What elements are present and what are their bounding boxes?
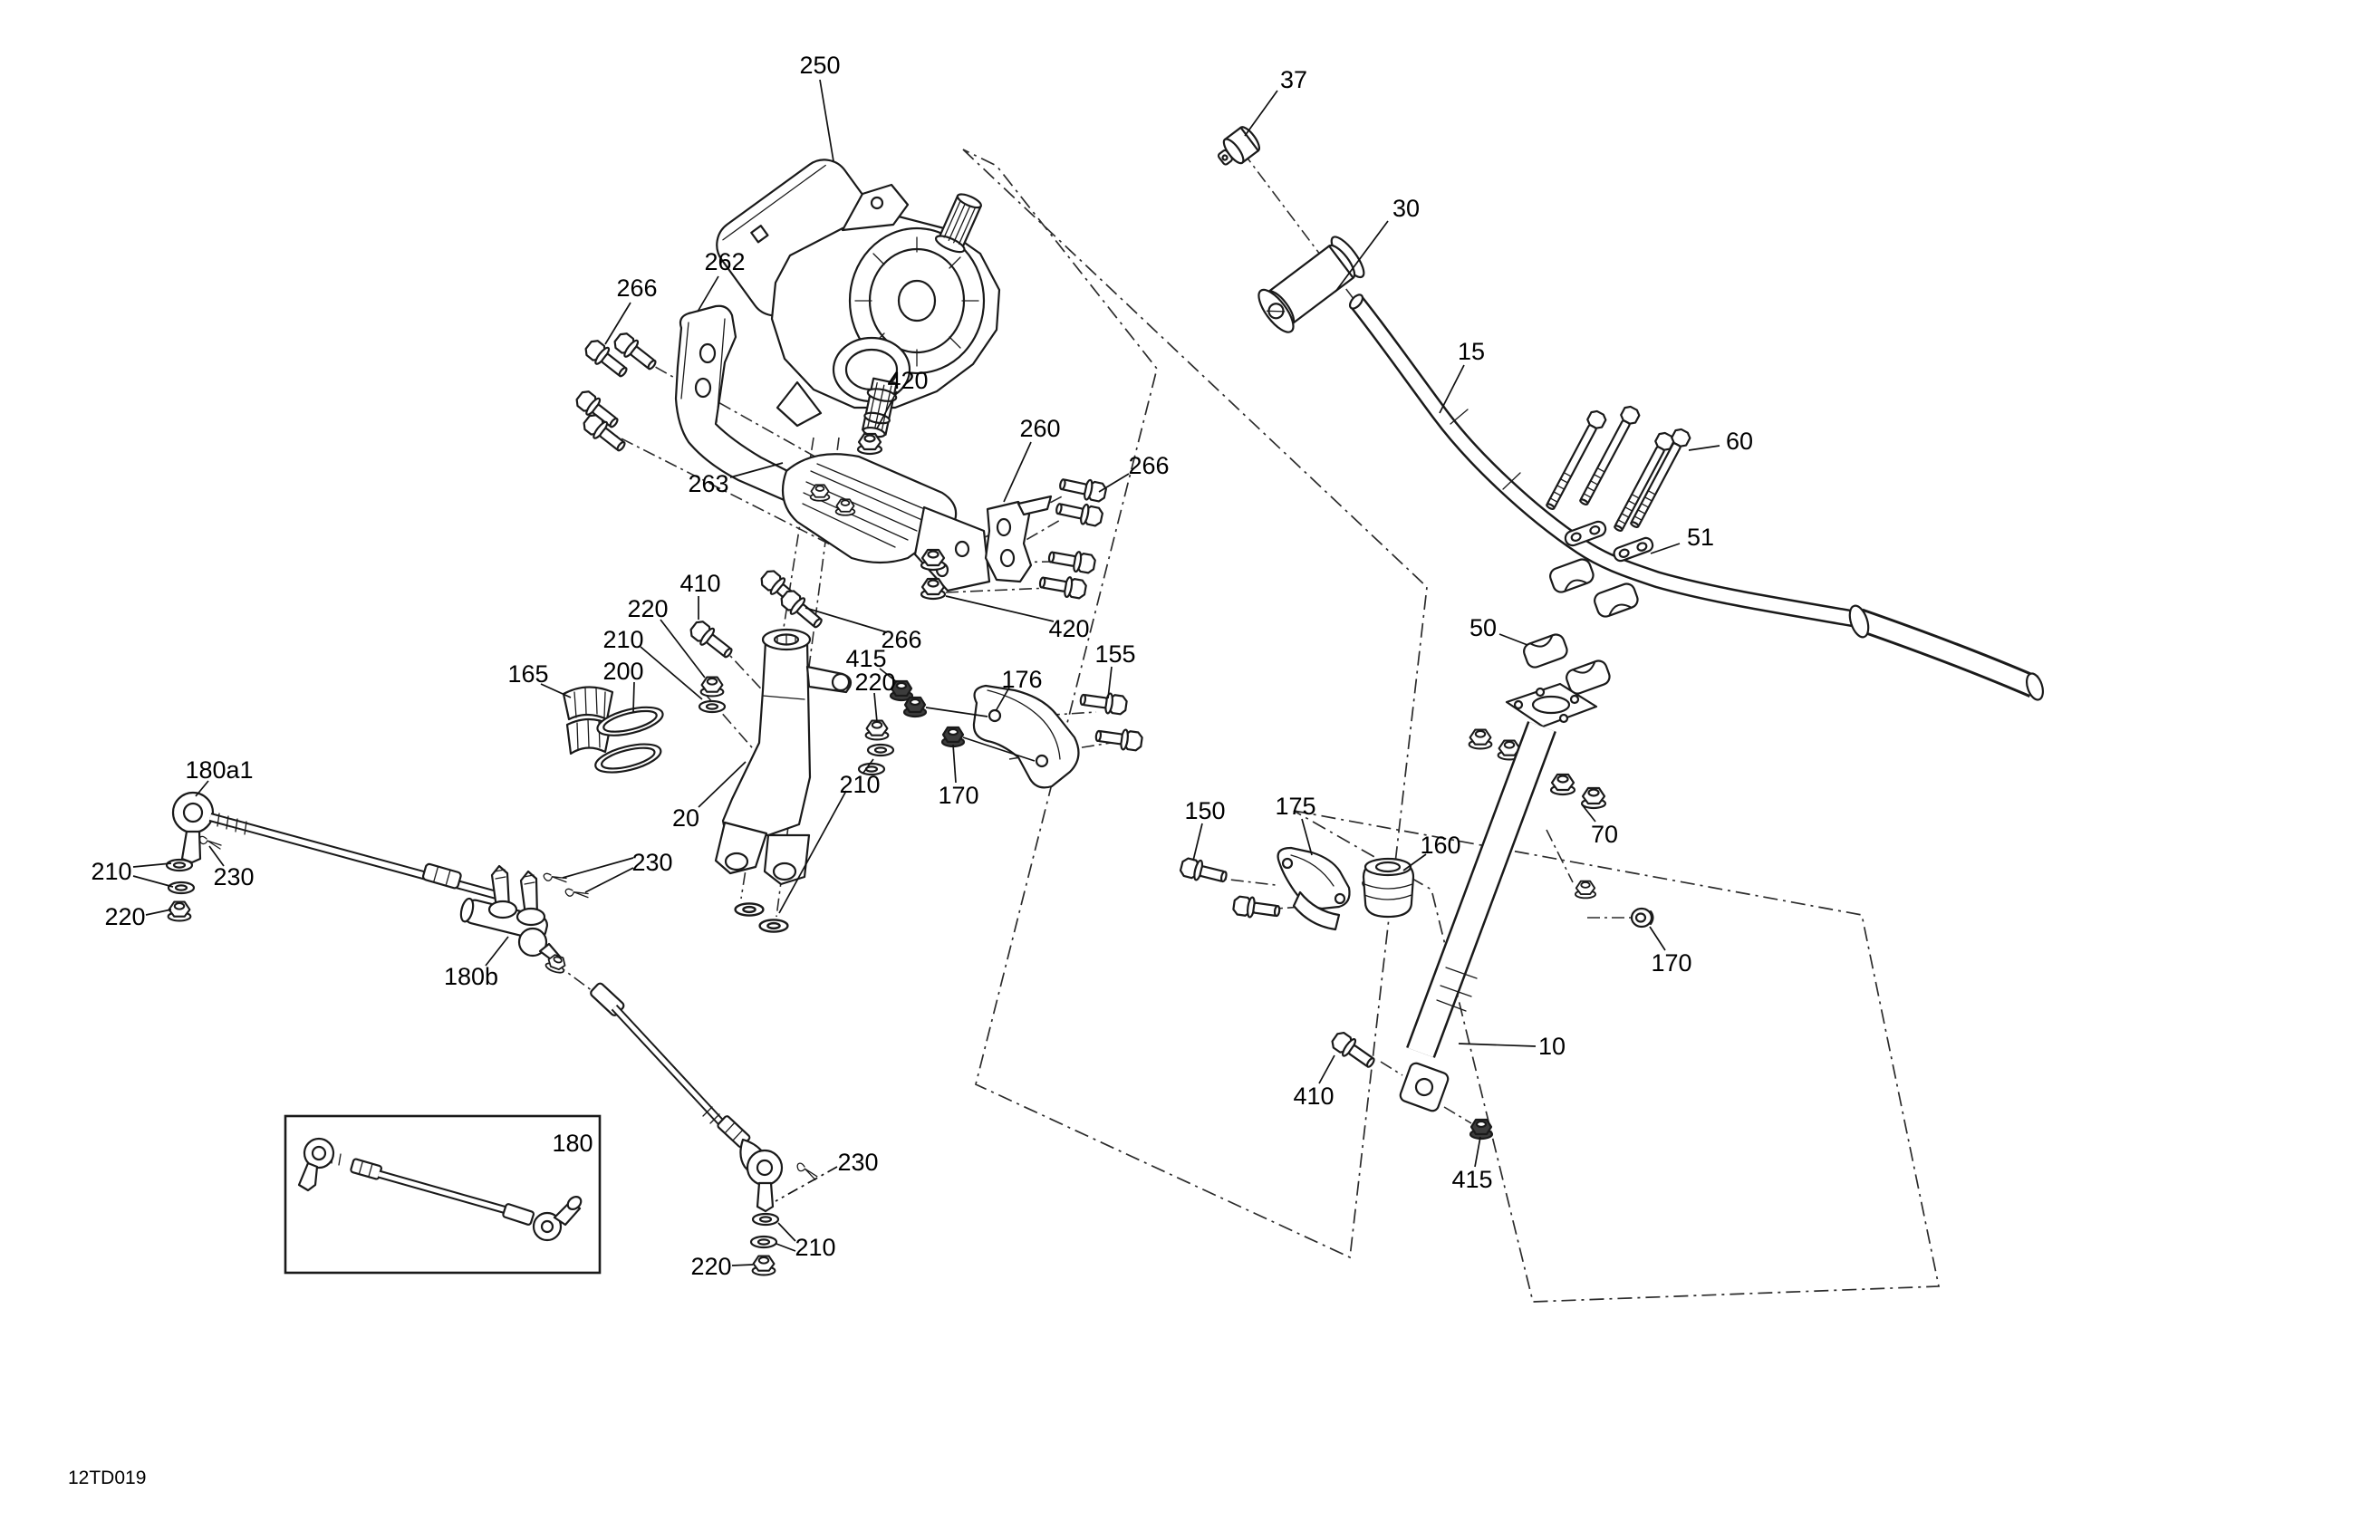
nut-220-outer bbox=[169, 902, 191, 921]
nut-spare bbox=[1575, 881, 1595, 899]
leader-line bbox=[133, 863, 171, 867]
leader-line bbox=[1193, 823, 1202, 861]
clamp-upper-a bbox=[1548, 557, 1595, 594]
part-label-210: 210 bbox=[795, 1234, 835, 1261]
washer-210-fork-a bbox=[736, 903, 764, 915]
bracket-260 bbox=[986, 496, 1051, 582]
bolt-150-a bbox=[1180, 856, 1229, 887]
part-label-51: 51 bbox=[1687, 524, 1714, 551]
leader-line bbox=[1459, 1044, 1536, 1046]
washer-210-inner-b bbox=[751, 1237, 776, 1247]
part-label-210: 210 bbox=[602, 626, 643, 653]
plate-51-b bbox=[1613, 536, 1654, 563]
part-label-210: 210 bbox=[91, 858, 131, 885]
part-label-50: 50 bbox=[1469, 614, 1497, 641]
bolt-150-b bbox=[1233, 895, 1281, 921]
part-label-420: 420 bbox=[887, 367, 928, 394]
leader-line bbox=[1440, 365, 1464, 413]
part-label-180a1: 180a1 bbox=[185, 756, 253, 784]
part-label-250: 250 bbox=[799, 52, 840, 79]
leader-line bbox=[633, 682, 634, 712]
nut-170-b bbox=[942, 727, 964, 746]
part-label-170: 170 bbox=[1651, 949, 1691, 977]
nut-415-bottom bbox=[1470, 1120, 1492, 1139]
bushing-160 bbox=[1363, 859, 1413, 917]
leader-line bbox=[776, 1167, 837, 1201]
part-label-220: 220 bbox=[690, 1253, 731, 1280]
clamp-175 bbox=[1278, 848, 1350, 929]
grip-spacer-30 bbox=[1253, 232, 1370, 337]
leader-line bbox=[778, 1223, 795, 1241]
nut-70-a bbox=[1551, 775, 1575, 794]
part-label-180: 180 bbox=[552, 1130, 593, 1157]
part-label-10: 10 bbox=[1538, 1033, 1566, 1060]
part-label-200: 200 bbox=[602, 658, 643, 685]
part-label-230: 230 bbox=[631, 849, 672, 876]
leader-line bbox=[946, 596, 1054, 621]
drawing-code: 12TD019 bbox=[68, 1468, 146, 1488]
bolt-410-bottom bbox=[1329, 1029, 1378, 1072]
part-label-30: 30 bbox=[1392, 195, 1420, 222]
exploded-view-diagram: 2503730156051266262420263260266410220210… bbox=[0, 0, 2380, 1540]
steering-stem-20 bbox=[716, 630, 851, 884]
leader-line bbox=[133, 876, 173, 887]
part-label-410: 410 bbox=[679, 570, 720, 597]
part-label-266: 266 bbox=[881, 626, 921, 653]
alignment-axis bbox=[1547, 830, 1573, 882]
relay-link-180b bbox=[459, 866, 589, 975]
alignment-axis bbox=[1444, 1107, 1471, 1123]
part-label-150: 150 bbox=[1184, 797, 1225, 824]
part-label-37: 37 bbox=[1280, 66, 1307, 93]
bolt-60-b bbox=[1575, 405, 1641, 508]
washer-210-inner-a bbox=[753, 1214, 778, 1225]
part-label-260: 260 bbox=[1019, 415, 1060, 442]
leader-line bbox=[146, 910, 171, 915]
alignment-axis bbox=[1381, 1062, 1402, 1075]
nut-420-top bbox=[858, 434, 882, 454]
part-label-60: 60 bbox=[1726, 428, 1753, 455]
plug-37 bbox=[1212, 124, 1262, 172]
leader-line bbox=[1651, 544, 1680, 553]
part-label-180b: 180b bbox=[444, 963, 498, 990]
steering-column-10 bbox=[1361, 727, 1542, 1112]
leader-line bbox=[1499, 634, 1527, 645]
nut-420-a bbox=[921, 550, 945, 570]
leader-line bbox=[585, 868, 633, 892]
parts-diagram-page: 2503730156051266262420263260266410220210… bbox=[0, 0, 2380, 1540]
nut-under-plate-a bbox=[1469, 730, 1492, 749]
part-label-415: 415 bbox=[1451, 1166, 1492, 1193]
part-label-15: 15 bbox=[1458, 338, 1485, 365]
nut-220-inner bbox=[753, 1256, 776, 1275]
bolt-410-top bbox=[688, 618, 736, 661]
leader-line bbox=[953, 745, 956, 783]
part-label-263: 263 bbox=[688, 470, 728, 497]
leader-line bbox=[820, 80, 833, 161]
part-label-210: 210 bbox=[839, 771, 880, 798]
part-label-266: 266 bbox=[616, 274, 657, 302]
handlebar-riser-hardware bbox=[1469, 405, 1692, 808]
part-label-220: 220 bbox=[104, 903, 145, 930]
assembly-boundaries bbox=[963, 149, 1939, 1302]
tie-rod-inner bbox=[590, 982, 820, 1211]
leader-line bbox=[1650, 927, 1665, 950]
part-label-170: 170 bbox=[938, 782, 978, 809]
part-label-410: 410 bbox=[1293, 1083, 1334, 1110]
part-label-155: 155 bbox=[1094, 640, 1135, 668]
part-label-175: 175 bbox=[1275, 793, 1315, 820]
part-label-230: 230 bbox=[213, 863, 254, 890]
part-label-266: 266 bbox=[1128, 452, 1169, 479]
part-label-70: 70 bbox=[1591, 821, 1618, 848]
washer-210-left bbox=[699, 701, 725, 712]
leader-line bbox=[1689, 446, 1720, 450]
nut-170-a bbox=[904, 698, 926, 717]
leader-line bbox=[1245, 91, 1277, 136]
leader-line bbox=[874, 693, 877, 722]
leader-line bbox=[486, 937, 508, 966]
clamp-50-a bbox=[1522, 632, 1569, 669]
leader-line bbox=[1099, 474, 1129, 492]
nut-420-b bbox=[921, 579, 945, 599]
washer-210-outer-b bbox=[169, 882, 194, 893]
leader-line bbox=[776, 1244, 795, 1251]
part-label-220: 220 bbox=[627, 595, 668, 622]
output-spline-upper bbox=[934, 190, 986, 255]
leader-line bbox=[1004, 442, 1031, 502]
handlebar-15 bbox=[1347, 293, 2046, 702]
nut-70-b bbox=[1582, 788, 1605, 808]
bolt-60-a bbox=[1542, 409, 1607, 513]
nut-170-right bbox=[1632, 909, 1653, 927]
part-label-165: 165 bbox=[507, 660, 548, 688]
part-label-220: 220 bbox=[854, 669, 895, 696]
clamp-upper-b bbox=[1593, 582, 1640, 619]
washer-210-right-a bbox=[868, 745, 893, 756]
part-label-262: 262 bbox=[704, 248, 745, 275]
part-label-230: 230 bbox=[837, 1149, 878, 1176]
leader-line bbox=[563, 858, 633, 878]
leader-line bbox=[1475, 1137, 1480, 1167]
bolts-266-right bbox=[1038, 474, 1107, 600]
leader-line bbox=[732, 1265, 753, 1266]
washer-210-fork-b bbox=[760, 919, 788, 931]
part-label-160: 160 bbox=[1420, 832, 1460, 859]
nut-220-left bbox=[701, 678, 724, 697]
bolt-155-b bbox=[1094, 726, 1142, 752]
bolt-155-a bbox=[1079, 689, 1127, 716]
power-steering-unit-250 bbox=[707, 149, 999, 439]
part-label-420: 420 bbox=[1048, 615, 1089, 642]
leader-line bbox=[1319, 1055, 1335, 1083]
part-label-20: 20 bbox=[672, 804, 699, 832]
support-plate-263 bbox=[783, 454, 989, 591]
washer-210-outer-a bbox=[167, 860, 192, 871]
part-label-176: 176 bbox=[1001, 666, 1042, 693]
nut-220-right bbox=[866, 721, 889, 740]
bolts-266-left bbox=[573, 330, 660, 455]
leader-line bbox=[641, 647, 702, 699]
